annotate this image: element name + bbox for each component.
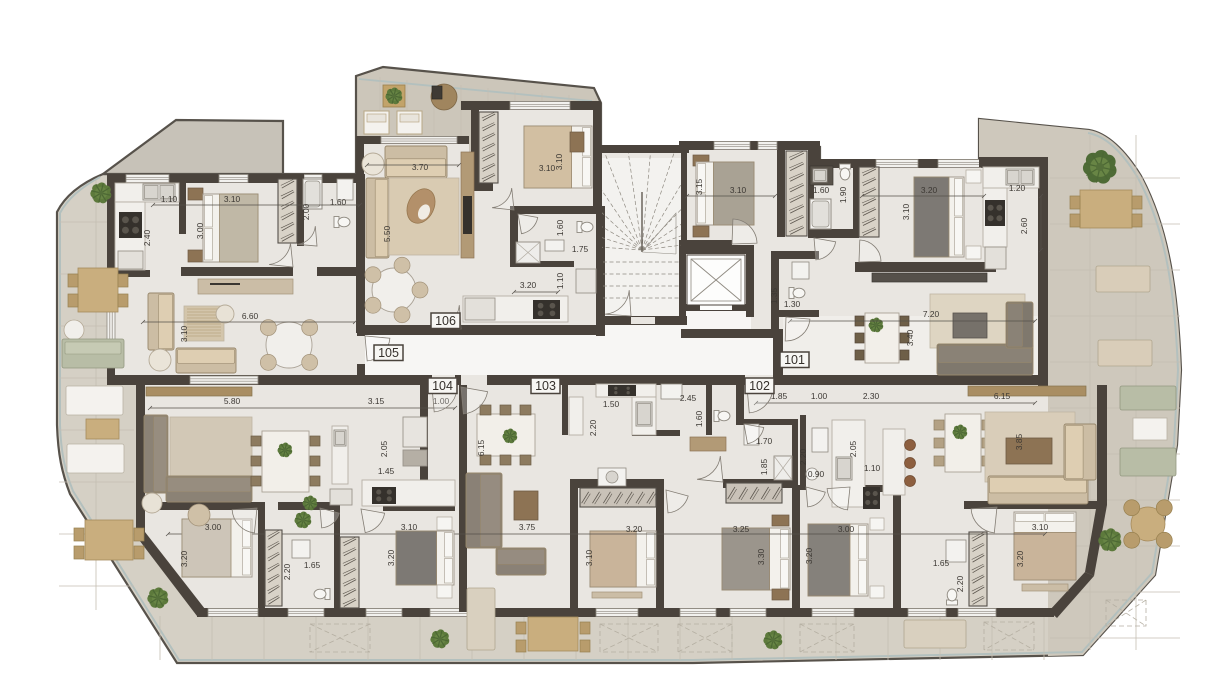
svg-text:3.10: 3.10 [554,154,564,171]
svg-text:3.15: 3.15 [694,179,704,196]
svg-text:3.20: 3.20 [179,551,189,568]
svg-text:3.00: 3.00 [838,524,855,534]
svg-text:3.10: 3.10 [584,550,594,567]
svg-text:3.30: 3.30 [756,549,766,566]
svg-text:3.10: 3.10 [539,163,556,173]
svg-text:2.20: 2.20 [282,564,292,581]
svg-text:3.85: 3.85 [1014,434,1024,451]
svg-text:2.40: 2.40 [142,230,152,247]
svg-text:105: 105 [378,346,399,360]
svg-text:1.35: 1.35 [769,288,779,305]
svg-text:1.60: 1.60 [813,185,830,195]
svg-text:2.05: 2.05 [379,441,389,458]
svg-text:2.60: 2.60 [1019,218,1029,235]
svg-text:3.10: 3.10 [179,326,189,343]
svg-text:1.10: 1.10 [161,194,178,204]
svg-text:1.20: 1.20 [1009,183,1026,193]
svg-text:5.80: 5.80 [224,396,241,406]
svg-text:5.50: 5.50 [382,226,392,243]
svg-text:3.15: 3.15 [368,396,385,406]
svg-text:3.10: 3.10 [730,185,747,195]
svg-text:1.10: 1.10 [864,463,881,473]
svg-text:3.70: 3.70 [412,162,429,172]
svg-text:1.00: 1.00 [811,391,828,401]
svg-text:3.10: 3.10 [1032,522,1049,532]
svg-text:2.20: 2.20 [588,420,598,437]
svg-text:7.20: 7.20 [923,309,940,319]
svg-text:1.50: 1.50 [603,399,620,409]
svg-text:6.15: 6.15 [476,440,486,457]
svg-text:0.90: 0.90 [808,469,825,479]
svg-text:2.20: 2.20 [955,576,965,593]
svg-text:1.45: 1.45 [378,466,395,476]
svg-text:3.20: 3.20 [626,524,643,534]
svg-text:6.15: 6.15 [994,391,1011,401]
svg-text:3.00: 3.00 [205,522,222,532]
svg-text:3.10: 3.10 [401,522,418,532]
svg-text:3.10: 3.10 [224,194,241,204]
svg-text:2.05: 2.05 [848,441,858,458]
svg-text:2.45: 2.45 [680,393,697,403]
svg-text:3.00: 3.00 [195,223,205,240]
svg-text:3.20: 3.20 [804,548,814,565]
svg-text:106: 106 [435,314,456,328]
svg-text:3.25: 3.25 [733,524,750,534]
svg-text:3.20: 3.20 [1015,551,1025,568]
svg-text:2.30: 2.30 [863,391,880,401]
svg-text:3.20: 3.20 [386,550,396,567]
svg-text:3.40: 3.40 [905,330,915,347]
svg-text:1.60: 1.60 [555,220,565,237]
svg-text:102: 102 [749,379,770,393]
svg-text:101: 101 [784,353,805,367]
svg-text:2.00: 2.00 [301,204,311,221]
svg-text:3.20: 3.20 [520,280,537,290]
svg-text:3.75: 3.75 [519,522,536,532]
svg-text:1.60: 1.60 [694,411,704,428]
svg-text:1.90: 1.90 [838,187,848,204]
svg-text:103: 103 [535,379,556,393]
svg-text:1.30: 1.30 [784,299,801,309]
svg-text:1.60: 1.60 [330,197,347,207]
svg-text:6.60: 6.60 [242,311,259,321]
svg-text:104: 104 [432,379,453,393]
svg-text:1.85: 1.85 [759,459,769,476]
svg-text:3.20: 3.20 [921,185,938,195]
svg-text:1.75: 1.75 [572,244,589,254]
svg-text:1.65: 1.65 [933,558,950,568]
svg-text:1.10: 1.10 [555,273,565,290]
svg-text:2.20: 2.20 [798,449,808,466]
svg-text:3.10: 3.10 [901,204,911,221]
svg-text:1.65: 1.65 [304,560,321,570]
